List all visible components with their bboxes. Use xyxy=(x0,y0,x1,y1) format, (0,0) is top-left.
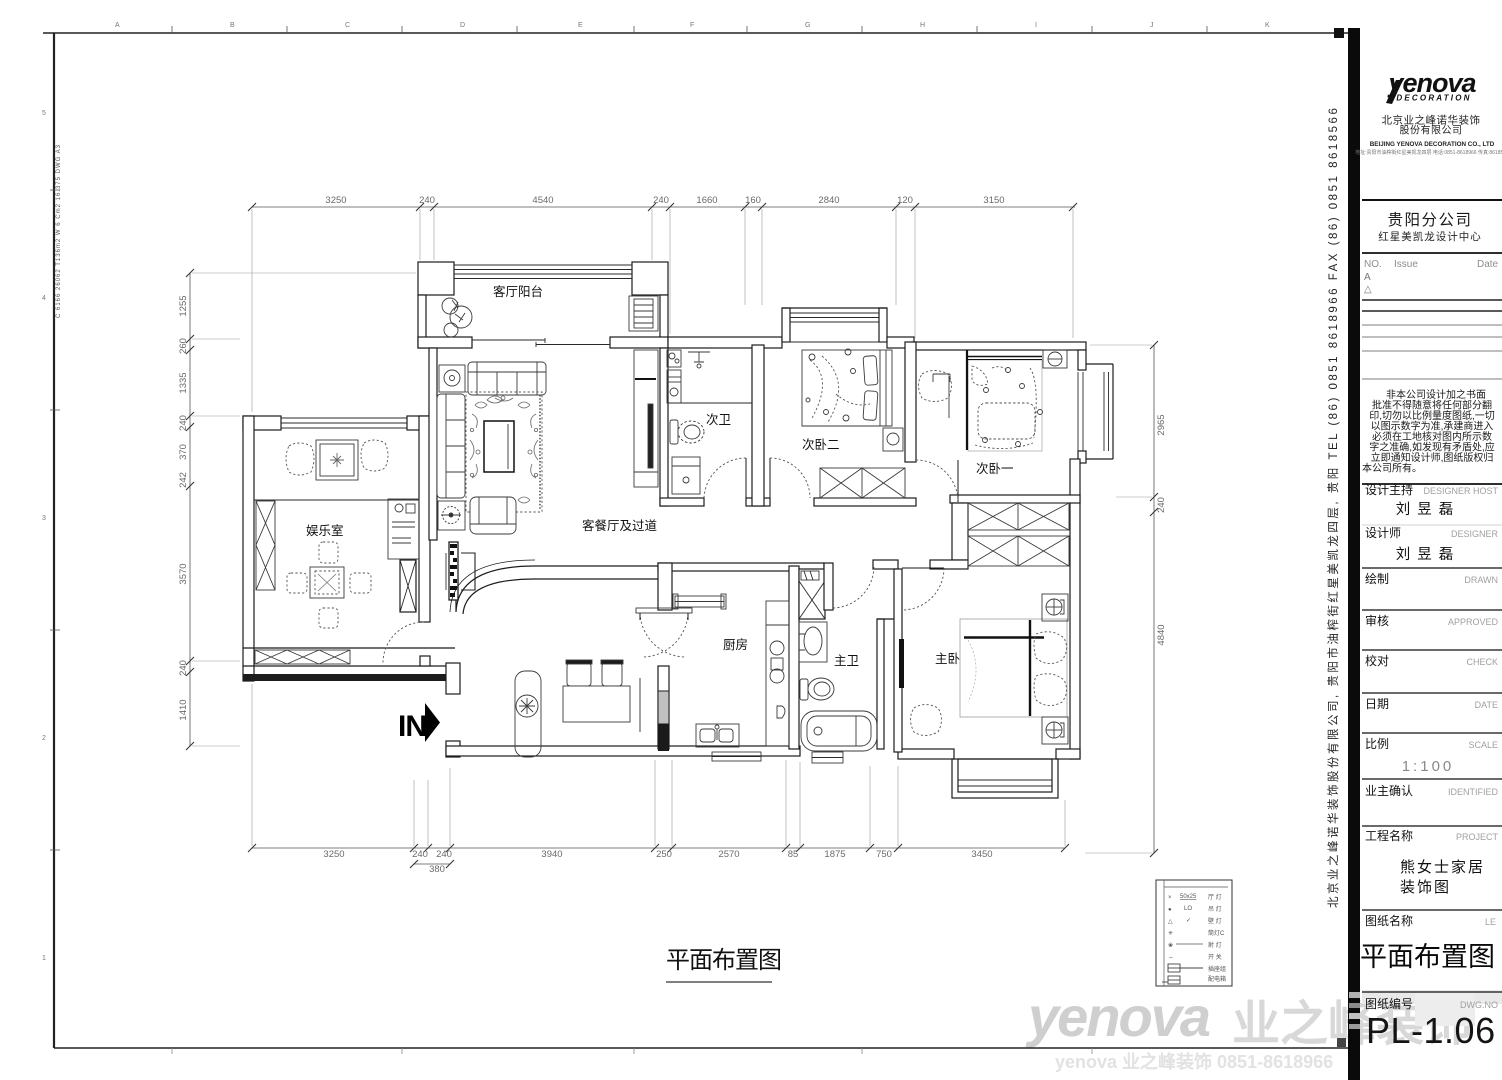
svg-text:H: H xyxy=(920,22,925,29)
svg-text:3: 3 xyxy=(42,515,46,522)
svg-text:主卧: 主卧 xyxy=(935,652,960,666)
svg-text:240: 240 xyxy=(412,849,428,860)
svg-text:240: 240 xyxy=(178,415,189,431)
svg-text:APPROVED: APPROVED xyxy=(1448,617,1499,627)
svg-text:刘昱磊: 刘昱磊 xyxy=(1396,501,1461,518)
svg-text:260: 260 xyxy=(178,338,189,354)
svg-text:50x25: 50x25 xyxy=(1180,894,1197,900)
svg-text:业主确认: 业主确认 xyxy=(1365,784,1413,798)
svg-text:工程名称: 工程名称 xyxy=(1365,828,1413,843)
svg-text:比例: 比例 xyxy=(1365,737,1389,751)
svg-text:3250: 3250 xyxy=(325,195,346,206)
svg-text:1660: 1660 xyxy=(696,195,717,206)
svg-text:开 关: 开 关 xyxy=(1208,953,1222,961)
svg-text:图纸编号: 图纸编号 xyxy=(1365,996,1413,1011)
svg-text:设计主持: 设计主持 xyxy=(1365,482,1413,497)
svg-text:85: 85 xyxy=(788,849,799,860)
svg-text:3570: 3570 xyxy=(178,563,189,584)
svg-text:客厅阳台: 客厅阳台 xyxy=(493,284,543,299)
svg-text:DESIGNER: DESIGNER xyxy=(1451,529,1499,539)
svg-text:LE: LE xyxy=(1485,917,1496,927)
svg-text:次卧二: 次卧二 xyxy=(802,438,840,452)
svg-text:E: E xyxy=(578,22,583,29)
svg-text:✳: ✳ xyxy=(1168,930,1173,937)
svg-text:图纸名称: 图纸名称 xyxy=(1365,913,1413,928)
svg-text:240: 240 xyxy=(653,195,669,206)
svg-text:插座组: 插座组 xyxy=(1208,965,1226,973)
svg-text:3250: 3250 xyxy=(323,849,344,860)
svg-text:非本公司设计加之书面: 非本公司设计加之书面 xyxy=(1386,388,1486,401)
svg-text:2: 2 xyxy=(42,735,46,742)
svg-text:Date: Date xyxy=(1477,259,1499,270)
svg-text:△: △ xyxy=(1168,919,1173,925)
svg-text:吊 灯: 吊 灯 xyxy=(1208,905,1222,913)
svg-text:I: I xyxy=(1035,22,1037,29)
svg-text:△: △ xyxy=(1364,284,1372,295)
svg-text:地址:贵阳市油榨街红星美凯龙四层 电话:0851-86189: 地址:贵阳市油榨街红星美凯龙四层 电话:0851-8618966 传真:8618… xyxy=(1355,149,1502,156)
svg-text:750: 750 xyxy=(876,849,892,860)
svg-text:配电箱: 配电箱 xyxy=(1208,975,1226,983)
svg-text:1875: 1875 xyxy=(824,849,845,860)
svg-text:批准不得随意将任何部分翻: 批准不得随意将任何部分翻 xyxy=(1372,399,1492,412)
svg-text:120: 120 xyxy=(897,195,913,206)
svg-text:贵阳分公司: 贵阳分公司 xyxy=(1387,211,1472,229)
svg-text:客餐厅及过道: 客餐厅及过道 xyxy=(582,518,658,533)
svg-text:160: 160 xyxy=(745,195,761,206)
svg-text:SCALE: SCALE xyxy=(1468,740,1498,750)
svg-text:1410: 1410 xyxy=(178,699,189,720)
svg-text:2840: 2840 xyxy=(818,195,839,206)
svg-text:射 灯: 射 灯 xyxy=(1208,941,1222,949)
svg-text:2965: 2965 xyxy=(1156,414,1167,435)
svg-text:1:100: 1:100 xyxy=(1402,758,1455,775)
svg-text:×: × xyxy=(1168,895,1172,901)
svg-text:C 6166 26062 T136m2 W 6 Cm2 16: C 6166 26062 T136m2 W 6 Cm2 16.375 DWG A… xyxy=(56,144,62,318)
svg-text:5: 5 xyxy=(42,110,46,117)
svg-text:C: C xyxy=(345,22,350,29)
svg-text:yenova: yenova xyxy=(1025,985,1210,1048)
svg-text:熊女士家居: 熊女士家居 xyxy=(1400,858,1485,876)
svg-text:240: 240 xyxy=(419,195,435,206)
svg-text:筒灯C: 筒灯C xyxy=(1208,929,1225,937)
svg-text:娱乐室: 娱乐室 xyxy=(306,523,344,538)
svg-text:3940: 3940 xyxy=(541,849,562,860)
svg-text:设计师: 设计师 xyxy=(1365,526,1401,540)
svg-text:BEIJING YENOVA DECORATION CO.,: BEIJING YENOVA DECORATION CO., LTD xyxy=(1370,141,1495,148)
svg-text:240: 240 xyxy=(436,849,452,860)
svg-text:1335: 1335 xyxy=(178,372,189,393)
svg-text:1: 1 xyxy=(42,955,46,962)
svg-text:次卧一: 次卧一 xyxy=(976,462,1014,476)
svg-text:绘制: 绘制 xyxy=(1365,571,1389,586)
svg-text:CHECK: CHECK xyxy=(1466,657,1498,667)
svg-text:必须在工地核对图内所示数: 必须在工地核对图内所示数 xyxy=(1372,430,1492,443)
svg-text:日期: 日期 xyxy=(1365,697,1389,711)
svg-text:厅 灯: 厅 灯 xyxy=(1208,893,1222,901)
svg-text:4840: 4840 xyxy=(1156,624,1167,645)
svg-text:3150: 3150 xyxy=(983,195,1004,206)
svg-text:380: 380 xyxy=(429,864,445,875)
svg-text:❀: ❀ xyxy=(1168,942,1173,949)
svg-text:●: ● xyxy=(1168,907,1172,913)
svg-text:B: B xyxy=(230,22,235,29)
svg-text:240: 240 xyxy=(1156,497,1167,513)
svg-text:DATE: DATE xyxy=(1475,700,1498,710)
svg-text:3450: 3450 xyxy=(971,849,992,860)
svg-text:IDENTIFIED: IDENTIFIED xyxy=(1448,787,1499,797)
svg-text:yenova 业之峰装饰 0851-8618966: yenova 业之峰装饰 0851-8618966 xyxy=(1055,1051,1333,1072)
svg-text:北京业之峰诺华装饰股份有限公司, 贵阳市油榨街红星美凯龙四层: 北京业之峰诺华装饰股份有限公司, 贵阳市油榨街红星美凯龙四层, 贵阳 TEL (… xyxy=(1326,106,1340,908)
svg-text:PL-1.06: PL-1.06 xyxy=(1366,1010,1496,1051)
svg-text:1255: 1255 xyxy=(178,295,189,316)
svg-text:审核: 审核 xyxy=(1365,613,1389,628)
svg-text:4: 4 xyxy=(42,295,46,302)
svg-text:立即通知设计师,图纸版权归: 立即通知设计师,图纸版权归 xyxy=(1371,451,1494,464)
svg-text:厨房: 厨房 xyxy=(723,637,748,652)
svg-text:A: A xyxy=(115,22,120,29)
svg-text:D: D xyxy=(460,22,465,29)
svg-text:370: 370 xyxy=(178,444,189,460)
svg-text:字之准确,如发现有矛盾处,应: 字之准确,如发现有矛盾处,应 xyxy=(1369,441,1495,454)
svg-text:红星美凯龙设计中心: 红星美凯龙设计中心 xyxy=(1378,230,1482,243)
svg-text:本公司所有。: 本公司所有。 xyxy=(1362,462,1422,475)
svg-text:A: A xyxy=(1364,272,1371,283)
svg-text:K: K xyxy=(1265,22,1270,29)
svg-text:刘昱磊: 刘昱磊 xyxy=(1396,546,1461,563)
svg-text:2570: 2570 xyxy=(718,849,739,860)
svg-text:G: G xyxy=(805,22,810,29)
svg-text:股份有限公司: 股份有限公司 xyxy=(1400,124,1463,137)
svg-text:IN: IN xyxy=(398,710,426,743)
svg-text:装饰图: 装饰图 xyxy=(1400,879,1451,896)
svg-text:Issue: Issue xyxy=(1394,259,1418,270)
svg-text:主卫: 主卫 xyxy=(834,654,859,668)
svg-text:PROJECT: PROJECT xyxy=(1456,832,1499,842)
svg-text:次卫: 次卫 xyxy=(706,413,731,427)
svg-text:DECORATION: DECORATION xyxy=(1396,94,1471,103)
svg-text:平面布置图: 平面布置图 xyxy=(1360,942,1495,972)
svg-text:240: 240 xyxy=(178,660,189,676)
svg-text:J: J xyxy=(1150,22,1154,29)
svg-text:⇔: ⇔ xyxy=(1168,955,1174,961)
svg-text:250: 250 xyxy=(656,849,672,860)
svg-text:DWG.NO: DWG.NO xyxy=(1460,1000,1498,1010)
svg-text:以图示数字为准,承建商进入: 以图示数字为准,承建商进入 xyxy=(1371,420,1494,433)
svg-text:✓: ✓ xyxy=(1186,918,1191,924)
svg-text:校对: 校对 xyxy=(1365,653,1389,668)
svg-text:DESIGNER HOST: DESIGNER HOST xyxy=(1423,486,1498,496)
svg-text:F: F xyxy=(690,22,694,29)
svg-text:4540: 4540 xyxy=(532,195,553,206)
svg-text:印,切勿以比例量度图纸,一切: 印,切勿以比例量度图纸,一切 xyxy=(1369,409,1495,422)
svg-text:242: 242 xyxy=(178,472,189,488)
svg-text:DRAWN: DRAWN xyxy=(1464,575,1498,585)
svg-text:平面布置图: 平面布置图 xyxy=(666,947,781,974)
svg-text:LO: LO xyxy=(1184,906,1192,912)
svg-text:壁 灯: 壁 灯 xyxy=(1208,917,1222,925)
svg-text:NO.: NO. xyxy=(1364,259,1382,270)
